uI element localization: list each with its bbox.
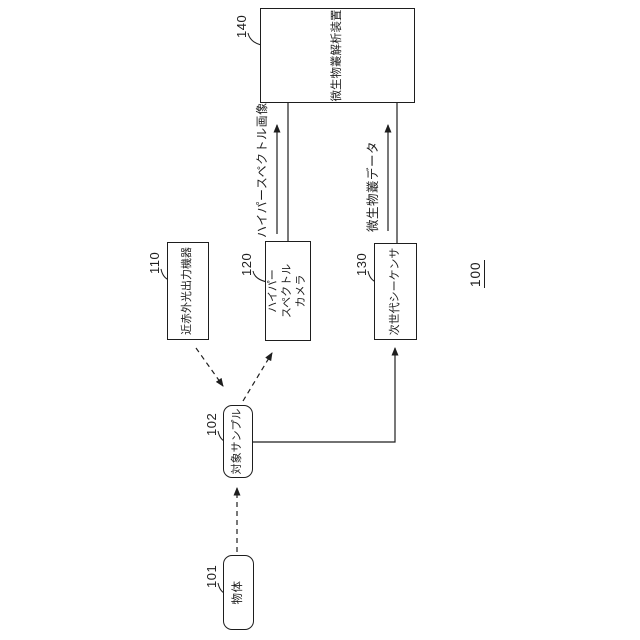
flow-label-microbiome-data: 微生物叢データ (362, 141, 381, 232)
camera-label-line1: ハイパー (267, 264, 281, 318)
box-hyperspectral-camera: ハイパー スペクトル カメラ (265, 241, 311, 341)
box-ngs-sequencer-label: 次世代シーケンサ (389, 248, 403, 336)
box-nir-light-source-label: 近赤外光出力機器 (181, 247, 195, 335)
patent-figure-stage: 物体 対象サンプル 近赤外光出力機器 ハイパー スペクトル カメラ 次世代シーケ… (0, 0, 640, 640)
box-ngs-sequencer: 次世代シーケンサ (374, 243, 417, 340)
box-object: 物体 (223, 555, 254, 630)
box-hyperspectral-camera-label: ハイパー スペクトル カメラ (267, 264, 308, 318)
refnum-130: 130 (354, 253, 369, 276)
arrow-sample-to-sequencer (253, 348, 395, 442)
refnum-120: 120 (239, 253, 254, 276)
arrow-light-to-sample (196, 348, 223, 386)
box-object-label: 物体 (231, 581, 245, 605)
system-ref-100: 100 (468, 260, 485, 288)
flow-label-hyperspectral-image: ハイパースペクトル画像 (253, 102, 270, 238)
box-sample-label: 対象サンプル (231, 409, 245, 475)
box-nir-light-source: 近赤外光出力機器 (167, 242, 209, 340)
box-microbiome-analyzer-label: 微生物叢解析装置 (330, 10, 344, 102)
box-sample: 対象サンプル (223, 405, 253, 478)
arrow-sample-to-camera (243, 353, 272, 401)
refnum-102: 102 (204, 413, 219, 436)
refnum-101: 101 (204, 565, 219, 588)
camera-label-line2: スペクトル (281, 264, 295, 318)
refnum-140: 140 (234, 15, 249, 38)
box-microbiome-analyzer: 微生物叢解析装置 (260, 8, 415, 103)
refnum-110: 110 (147, 252, 162, 274)
camera-label-line3: カメラ (295, 264, 309, 318)
